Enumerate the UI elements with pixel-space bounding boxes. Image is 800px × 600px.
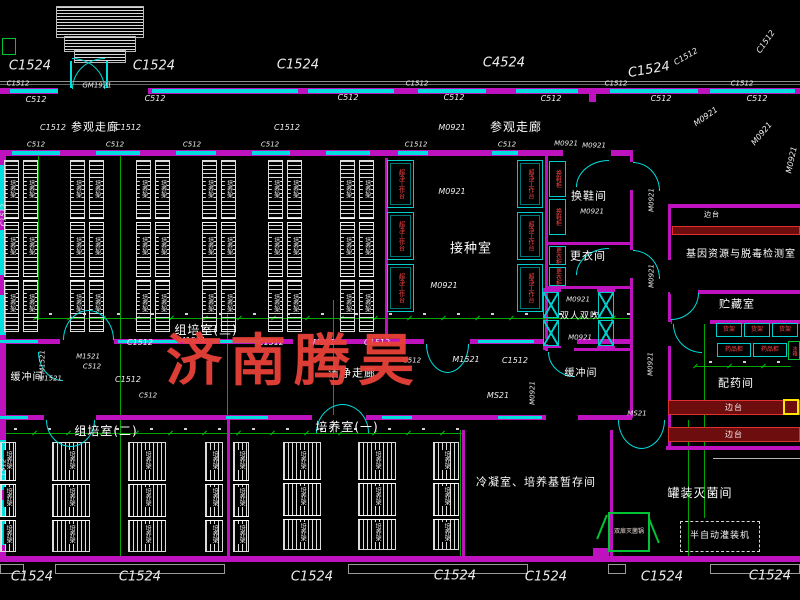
green-marker-box <box>2 38 16 55</box>
door-code: M0921 <box>568 335 592 342</box>
rack-label: 培养架 <box>143 487 151 507</box>
eave-line <box>0 81 800 82</box>
dimension-text-mark <box>456 428 459 430</box>
rack-label: 培养架 <box>26 293 34 313</box>
window-code: C1512 <box>40 124 66 132</box>
dimension-text-mark <box>321 313 324 315</box>
door-arc <box>671 293 699 320</box>
rack-label: 培养架 <box>343 179 351 199</box>
culture-rack: 培养架培养架培养架 <box>89 160 104 332</box>
clean-bench: 超净工作台 <box>517 264 543 312</box>
wall <box>545 242 633 245</box>
dimension-text-mark <box>218 428 221 430</box>
double-door-sterilizer: 双扉灭菌锅 <box>608 512 650 552</box>
window <box>710 89 795 93</box>
rack-label: 培养架 <box>362 179 370 199</box>
room-label-air-shower: 双人双吹 <box>560 313 600 322</box>
shelf-unit-label: 货架 <box>779 327 791 333</box>
window-code: C1512 <box>274 124 300 132</box>
dimension-text-mark <box>422 428 425 430</box>
room-label-canning-sterilization-room: 罐装灭菌间 <box>667 487 732 499</box>
window <box>10 89 58 93</box>
door-arc <box>88 310 114 340</box>
wall-opening <box>548 348 574 351</box>
window <box>152 89 298 93</box>
rack-shelf-divider <box>70 276 85 281</box>
door-arc <box>46 420 71 447</box>
side-bench-label: 边台 <box>725 404 743 412</box>
window-code: C512 <box>261 142 279 149</box>
rack-label: 培养架 <box>362 293 370 313</box>
window-frame <box>608 564 626 574</box>
door-code: M0921 <box>582 143 606 150</box>
door-arc <box>633 162 660 191</box>
culture-rack: 培养架培养架培养架 <box>359 160 374 332</box>
rack-label: 培养架 <box>67 524 75 544</box>
window <box>0 416 28 419</box>
rack-label: 培养架 <box>343 293 351 313</box>
window <box>398 151 428 155</box>
rack-label: 培养架 <box>290 179 298 199</box>
medicine-cabinet-label: 药品柜 <box>725 347 743 353</box>
rack-label: 培养架 <box>92 236 100 256</box>
dimension-text-mark <box>423 313 426 315</box>
dimension-text-mark <box>184 428 187 430</box>
rack-shelf-divider <box>283 515 321 520</box>
culture-rack: 培养架培养架培养架 <box>433 442 459 550</box>
window-code: C1524 <box>133 60 175 73</box>
wall <box>597 346 615 350</box>
rack-label: 培养架 <box>224 236 232 256</box>
door-code: M0921 <box>693 106 720 128</box>
room-label-visiting-corridor-left: 参观走廊 <box>71 122 119 133</box>
window <box>516 89 578 93</box>
room-label-condensation-media-storage: 冷凝室、培养基暂存间 <box>476 477 596 488</box>
door-code: M0921 <box>750 121 774 147</box>
clean-bench-label: 超净工作台 <box>527 273 533 303</box>
culture-rack: 培养架培养架培养架 <box>205 442 223 552</box>
rack-label: 培养架 <box>26 179 34 199</box>
fridge: 冰箱 <box>788 341 800 360</box>
rack-shelf-divider <box>433 515 459 520</box>
door-code: M0921 <box>649 264 656 288</box>
window <box>478 340 534 343</box>
rack-shelf-divider <box>287 218 302 223</box>
rack-shelf-divider <box>358 515 396 520</box>
window-code: C1524 <box>119 571 161 584</box>
door-arc <box>576 160 609 187</box>
rack-label: 培养架 <box>143 524 151 544</box>
dimension-text-mark <box>389 313 392 315</box>
window-code: C1512 <box>1 459 8 482</box>
rack-shelf-divider <box>136 276 151 281</box>
window-code: C512 <box>338 94 359 102</box>
door-code: M0921 <box>554 141 578 148</box>
rack-label: 培养架 <box>92 179 100 199</box>
rack-label: 培养架 <box>271 293 279 313</box>
door-code: M1521 <box>76 354 100 361</box>
shoe-cabinet: 换鞋柜 <box>549 161 566 197</box>
culture-rack: 培养架培养架培养架 <box>23 160 38 332</box>
window <box>96 151 140 155</box>
door-arc <box>618 420 642 449</box>
rack-shelf-divider <box>4 276 19 281</box>
clean-bench: 超净工作台 <box>387 212 414 260</box>
door-code: M1521 <box>38 376 62 383</box>
rack-shelf-divider <box>359 218 374 223</box>
rack-label: 培养架 <box>373 522 381 542</box>
rack-label: 培养架 <box>373 486 381 506</box>
window-code: C512 <box>651 95 672 103</box>
dimension-text-mark <box>252 428 255 430</box>
rack-label: 培养架 <box>158 236 166 256</box>
window-code: C1512 <box>406 81 429 88</box>
window-code: C1512 <box>405 142 428 149</box>
rack-shelf-divider <box>52 516 90 521</box>
dimension-text-mark <box>253 313 256 315</box>
rack-label: 培养架 <box>442 486 450 506</box>
window <box>498 416 542 419</box>
window-code: C512 <box>139 393 157 400</box>
rack-shelf-divider <box>268 276 283 281</box>
window-code: C1524 <box>627 60 671 80</box>
culture-rack: 培养架培养架培养架 <box>268 160 283 332</box>
window-code: C512 <box>83 364 101 371</box>
dimension-text-mark <box>457 313 460 315</box>
balance <box>783 399 799 415</box>
rack-label: 培养架 <box>205 179 213 199</box>
culture-rack: 培养架培养架培养架 <box>155 160 170 332</box>
window <box>610 89 698 93</box>
medicine-cabinet: 药品柜 <box>753 343 787 357</box>
rack-shelf-divider <box>233 516 249 521</box>
shoe-cabinet-label: 换鞋柜 <box>555 208 561 226</box>
rack-label: 培养架 <box>290 293 298 313</box>
air-shower-unit <box>598 292 614 318</box>
medicine-cabinet: 药品柜 <box>717 343 751 357</box>
rack-shelf-divider <box>221 218 236 223</box>
wall-opening <box>546 415 578 420</box>
rack-label: 培养架 <box>4 487 12 507</box>
window-code: C1524 <box>525 571 567 584</box>
wall <box>227 418 230 556</box>
fridge-label: 冰箱 <box>792 346 797 356</box>
dimension-text-mark <box>525 313 528 315</box>
dimension-text-mark <box>185 313 188 315</box>
door-code: M0921 <box>566 297 590 304</box>
eave-line <box>0 84 800 85</box>
culture-rack: 培养架培养架培养架 <box>340 160 355 332</box>
air-shower-unit <box>598 320 614 346</box>
sterilizer-mark <box>596 515 608 540</box>
culture-rack: 培养架培养架培养架 <box>233 442 249 552</box>
window-code: C512 <box>26 96 47 104</box>
rack-shelf-divider <box>136 218 151 223</box>
clean-bench-label: 超净工作台 <box>527 169 533 199</box>
window-code: C1524 <box>9 60 51 73</box>
window-code: C512 <box>444 94 465 102</box>
window-code: C1512 <box>673 47 699 67</box>
wardrobe-cabinet-label: 更衣柜 <box>555 247 561 265</box>
room-label-shoe-change-room: 换鞋间 <box>571 191 607 202</box>
rack-label: 培养架 <box>158 179 166 199</box>
window-code: C1524 <box>291 571 333 584</box>
door-code: M0921 <box>649 188 656 212</box>
rack-shelf-divider <box>128 480 166 485</box>
rack-shelf-divider <box>155 276 170 281</box>
rack-shelf-divider <box>202 218 217 223</box>
culture-rack: 培养架培养架培养架 <box>52 442 90 552</box>
door-arc <box>633 250 660 279</box>
wardrobe-cabinet: 更衣柜 <box>549 246 566 265</box>
shelf-unit: 货架 <box>744 323 770 337</box>
rack-shelf-divider <box>268 218 283 223</box>
rack-shelf-divider <box>202 276 217 281</box>
rack-shelf-divider <box>433 479 459 484</box>
window-code: C512 <box>183 142 201 149</box>
exterior-wall-bottom <box>0 556 800 562</box>
dimension-line <box>713 458 800 459</box>
shelf-unit-label: 货架 <box>751 327 763 333</box>
window-code: C512 <box>498 142 516 149</box>
window <box>492 151 518 155</box>
culture-rack: 培养架培养架培养架 <box>128 442 166 552</box>
rack-label: 培养架 <box>139 179 147 199</box>
door-arc <box>63 310 89 340</box>
rack-shelf-divider <box>52 480 90 485</box>
rack-label: 培养架 <box>7 236 15 256</box>
door-code: M1521 <box>452 356 479 364</box>
rack-shelf-divider <box>23 218 38 223</box>
wall-opening <box>668 260 671 292</box>
dimension-text-mark <box>709 361 712 363</box>
door-arc <box>641 420 665 449</box>
door-code: M0921 <box>438 188 465 196</box>
rack-label: 培养架 <box>139 293 147 313</box>
culture-rack: 培养架培养架培养架 <box>4 160 19 332</box>
clean-bench: 超净工作台 <box>517 160 543 208</box>
window-code: C512 <box>541 95 562 103</box>
window <box>12 151 60 155</box>
window <box>176 151 216 155</box>
window-code: C1512 <box>755 29 776 55</box>
rack-label: 培养架 <box>298 486 306 506</box>
side-bench <box>672 226 800 235</box>
culture-rack: 培养架培养架培养架 <box>221 160 236 332</box>
grid-line <box>460 430 461 556</box>
clean-bench: 超净工作台 <box>387 160 414 208</box>
dimension-text-mark <box>388 428 391 430</box>
rack-label: 培养架 <box>67 487 75 507</box>
window <box>226 416 268 419</box>
side-bench: 边台 <box>668 427 800 442</box>
room-label-culture-room-1: 培养室(一) <box>315 421 378 433</box>
rack-label: 培养架 <box>210 524 218 544</box>
medicine-cabinet-label: 药品柜 <box>761 347 779 353</box>
window <box>382 416 412 419</box>
window-code: C1524 <box>277 59 319 72</box>
shelf-unit: 货架 <box>716 323 742 337</box>
window-code: C1512 <box>1 204 8 227</box>
culture-rack: 培养架培养架培养架 <box>202 160 217 332</box>
rack-shelf-divider <box>0 516 16 521</box>
rack-shelf-divider <box>89 276 104 281</box>
room-label-changing-room: 更衣间 <box>570 251 606 262</box>
wardrobe-cabinet: 更衣柜 <box>549 267 566 286</box>
door-code: M0921 <box>648 352 655 376</box>
rack-shelf-divider <box>128 516 166 521</box>
dimension-text-mark <box>151 313 154 315</box>
rack-label: 培养架 <box>210 487 218 507</box>
window-code: C1512 <box>7 81 30 88</box>
window-code: C1512 <box>115 376 141 384</box>
door-code: GM1921 <box>82 83 111 90</box>
wall-jog <box>593 548 609 556</box>
window-code: C1512 <box>502 357 528 365</box>
clean-bench: 超净工作台 <box>387 264 414 312</box>
room-label-inoculation-room: 接种室 <box>450 243 492 256</box>
rack-shelf-divider <box>233 480 249 485</box>
shoe-cabinet-label: 换鞋柜 <box>555 170 561 188</box>
rack-shelf-divider <box>23 276 38 281</box>
rack-shelf-divider <box>205 516 223 521</box>
air-shower-unit <box>543 320 559 346</box>
clean-bench-label: 超净工作台 <box>527 221 533 251</box>
dimension-text-mark <box>355 313 358 315</box>
window <box>326 151 370 155</box>
watermark: 济南腾昊 <box>166 334 422 390</box>
dimension-text-mark <box>743 361 746 363</box>
culture-rack: 培养架培养架培养架 <box>136 160 151 332</box>
rack-label: 培养架 <box>271 179 279 199</box>
rack-shelf-divider <box>155 218 170 223</box>
rack-shelf-divider <box>358 479 396 484</box>
rack-label: 培养架 <box>224 293 232 313</box>
rack-label: 培养架 <box>271 236 279 256</box>
filling-machine: 半自动灌装机 <box>680 521 760 552</box>
shelf-unit: 货架 <box>772 323 798 337</box>
clean-bench-label: 超净工作台 <box>398 221 404 251</box>
rack-label: 培养架 <box>373 450 381 470</box>
wall-opening <box>668 322 671 346</box>
door-code: M0921 <box>785 146 798 174</box>
rack-shelf-divider <box>89 218 104 223</box>
door-code: M1521 <box>40 350 47 374</box>
rack-label: 培养架 <box>205 293 213 313</box>
rack-label: 培养架 <box>237 487 245 507</box>
room-label-gene-resource-detection-room: 基因资源与脱毒检测室 <box>686 250 796 260</box>
window-code: C512 <box>27 142 45 149</box>
wall-jog <box>589 92 596 102</box>
rack-shelf-divider <box>283 479 321 484</box>
window <box>252 151 290 155</box>
rack-label: 培养架 <box>73 179 81 199</box>
shoe-cabinet: 换鞋柜 <box>549 199 566 235</box>
rack-label: 培养架 <box>73 293 81 313</box>
rack-label: 培养架 <box>362 236 370 256</box>
wall <box>668 204 800 208</box>
window-code: C1512 <box>127 339 153 347</box>
room-label-storage-room: 贮藏室 <box>719 299 755 310</box>
door-code: M0921 <box>580 209 604 216</box>
rack-shelf-divider <box>359 276 374 281</box>
rack-label: 培养架 <box>224 179 232 199</box>
clean-bench-label: 超净工作台 <box>398 169 404 199</box>
rack-label: 培养架 <box>7 179 15 199</box>
wardrobe-cabinet-label: 更衣柜 <box>555 268 561 286</box>
rack-shelf-divider <box>205 480 223 485</box>
rack-label: 培养架 <box>237 524 245 544</box>
dimension-line <box>695 366 791 367</box>
rack-shelf-divider <box>340 218 355 223</box>
rack-label: 培养架 <box>67 450 75 470</box>
filling-machine-label: 半自动灌装机 <box>690 532 750 541</box>
rack-shelf-divider <box>221 276 236 281</box>
door-code: M0921 <box>438 124 465 132</box>
rack-label: 培养架 <box>343 236 351 256</box>
rack-label: 培养架 <box>143 450 151 470</box>
window-code: C512 <box>106 142 124 149</box>
rack-label: 培养架 <box>139 236 147 256</box>
window <box>0 340 38 343</box>
rack-label: 培养架 <box>158 293 166 313</box>
wall <box>666 446 800 450</box>
shelf-unit-label: 货架 <box>723 327 735 333</box>
culture-rack: 培养架培养架培养架 <box>283 442 321 550</box>
window-code: C1524 <box>641 571 683 584</box>
side-bench-label: 边台 <box>725 431 743 439</box>
floor-plan: 济南腾昊 培养架培养架培养架培养架培养架培养架培养架培养架培养架培养架培养架培养… <box>0 0 800 600</box>
dimension-text-mark <box>14 428 17 430</box>
rack-shelf-divider <box>340 276 355 281</box>
door-code: MS21 <box>487 392 509 400</box>
equipment-label-side-bench: 边台 <box>704 212 720 219</box>
window-code: C1512 <box>605 81 628 88</box>
dimension-text-mark <box>117 313 120 315</box>
clean-bench: 超净工作台 <box>517 212 543 260</box>
door-arc <box>426 344 448 373</box>
rack-label: 培养架 <box>290 236 298 256</box>
dimension-text-mark <box>491 313 494 315</box>
window-code: C1512 <box>115 124 141 132</box>
rack-label: 培养架 <box>205 236 213 256</box>
rack-label: 培养架 <box>210 450 218 470</box>
window-code: C512 <box>747 95 768 103</box>
rack-label: 培养架 <box>298 522 306 542</box>
rack-label: 培养架 <box>26 236 34 256</box>
rack-label: 培养架 <box>237 450 245 470</box>
clean-bench-label: 超净工作台 <box>398 273 404 303</box>
dimension-text-mark <box>150 428 153 430</box>
wall <box>462 430 465 556</box>
window-code: C1512 <box>731 81 754 88</box>
window-code: C1524 <box>11 571 53 584</box>
window-code: C1524 <box>749 570 791 583</box>
rack-shelf-divider <box>70 218 85 223</box>
rack-label: 培养架 <box>298 450 306 470</box>
double-door-sterilizer-label: 双扉灭菌锅 <box>614 529 644 535</box>
dimension-text-mark <box>49 313 52 315</box>
grid-line <box>38 150 39 320</box>
window-code: C1524 <box>434 570 476 583</box>
grid-line <box>120 155 121 560</box>
corridor-wall <box>0 150 632 156</box>
entrance-canopy <box>56 6 144 38</box>
window-code: C4524 <box>483 57 525 70</box>
rack-label: 培养架 <box>73 236 81 256</box>
room-label-tissue-culture-room-2: 组培室(二) <box>74 425 137 437</box>
side-bench: 边台 <box>668 400 800 415</box>
